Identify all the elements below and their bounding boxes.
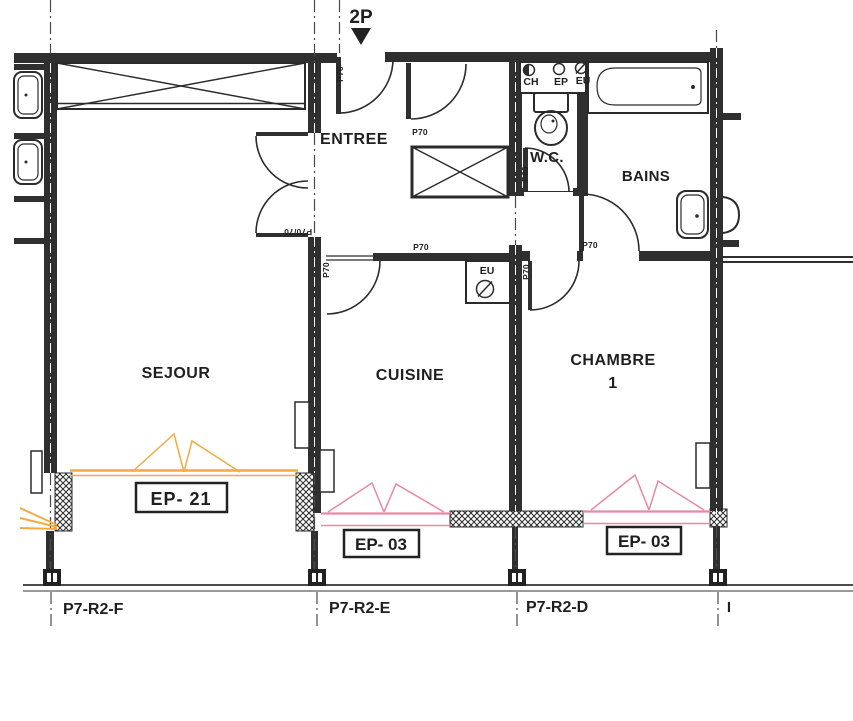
window-chambre: [583, 475, 710, 524]
toilet-dot: [552, 120, 555, 123]
neighbor-fixture-2-inner: [18, 144, 38, 180]
window-tag-chambre: EP- 03: [607, 527, 681, 554]
casement-triangle: [591, 475, 649, 510]
room-label-bains: BAINS: [622, 168, 670, 185]
wall-bains-south: [639, 251, 723, 261]
grid-label-e: P7-R2-E: [329, 600, 391, 617]
column-marker: [43, 569, 61, 586]
wall-cuisine-top: [373, 253, 512, 261]
column-slot: [47, 573, 51, 582]
casement-triangle: [184, 441, 240, 472]
closet-x: [57, 63, 305, 109]
column-square: [508, 569, 526, 586]
window-tag-cuisine: EP- 03: [344, 530, 419, 557]
pilaster-neighbor: [31, 451, 42, 493]
neighbor-basin: [723, 197, 739, 233]
entrance-door-arc: [339, 59, 393, 113]
window-tag-sejour: EP- 21: [136, 483, 227, 512]
neighbor-wall-stub-right: [723, 240, 739, 247]
washbasin-inner: [681, 195, 704, 234]
column-slot: [518, 573, 522, 582]
casement-triangle: [132, 434, 184, 472]
spandrel-center: [450, 511, 583, 527]
grid-tick-right: I: [727, 599, 731, 616]
column-marker: [709, 569, 727, 586]
door-tag-cuisine: P70: [321, 262, 331, 278]
eu-duct-label: EU: [576, 75, 591, 87]
closet-corridor: [412, 147, 508, 197]
cuisine-door-arc: [327, 261, 380, 314]
closet-sejour: [57, 63, 305, 109]
door-tag-corridor: P70: [413, 242, 429, 252]
closet-x: [412, 147, 508, 197]
toilet-bowl-inner: [541, 115, 557, 133]
neighbor-wall-stub: [14, 238, 44, 244]
room-label-sejour: SEJOUR: [142, 365, 211, 382]
room-label-wc: W.C.: [530, 149, 564, 166]
column-marker: [308, 569, 326, 586]
column-slot: [713, 573, 717, 582]
neighbor-window-corner: [20, 508, 57, 529]
double-door-arc-bottom: [256, 181, 308, 233]
cuisine-door-threshold: [326, 256, 374, 260]
window-cuisine: [321, 483, 450, 526]
neighbor-fixture-1-dot: [25, 94, 28, 97]
column-slot: [312, 573, 316, 582]
room-label-chambre-number: 1: [608, 375, 617, 392]
room-label-chambre: CHAMBRE: [570, 352, 655, 369]
ep-duct-label: EP: [554, 76, 568, 88]
entrance-arrow-icon: [351, 28, 371, 45]
room-label-cuisine: CUISINE: [376, 367, 444, 384]
neighbor-wall-stub: [14, 196, 44, 202]
facade-baseline: P7-R2-F P7-R2-E P7-R2-D I: [23, 569, 853, 618]
pier-sejour-left: [55, 473, 72, 531]
neighbor-wall-right-extension: [723, 257, 853, 262]
bathtub-inner: [597, 68, 701, 105]
neighbor-fixture-1-inner: [18, 76, 38, 114]
washbasin-drain-dot: [695, 214, 699, 218]
entrance-door-leaf: [336, 57, 341, 114]
door-tag-bains: P70: [582, 240, 598, 250]
window-tag-label: EP- 03: [618, 532, 670, 551]
double-door-leaf-top: [256, 132, 308, 136]
window-tag-label: EP- 21: [150, 489, 211, 509]
casement-triangle: [328, 483, 384, 512]
door-tag-entrance: P70: [335, 66, 345, 82]
duct-box-cuisine: EU: [466, 261, 510, 303]
pier-sejour-right: [296, 473, 314, 531]
grid-label-f: P7-R2-F: [63, 601, 124, 618]
pilaster-cuisine: [320, 450, 334, 492]
corridor-door-arc: [411, 64, 466, 119]
wall-top-left: [14, 53, 337, 63]
column-square: [43, 569, 61, 586]
neighbor-wall-stub: [14, 64, 44, 70]
pilaster-chambre: [696, 443, 710, 488]
neighbor-fixture-2-dot: [25, 161, 28, 164]
wall-corridor-jamb-left: [522, 251, 530, 261]
door-tag-chambre: P70: [521, 264, 531, 280]
ch-duct-label: CH: [523, 76, 538, 88]
wall-top-right: [385, 52, 723, 62]
door-tag-closet: P70: [412, 127, 428, 137]
neighbor-wall-stub: [14, 133, 44, 139]
neighbor-wall-stub-right: [723, 113, 741, 120]
door-tag-wc: P60: [520, 166, 530, 182]
wall-wc-jamb-left: [509, 188, 524, 196]
room-labels: SEJOUR ENTREE W.C. BAINS CUISINE CHAMBRE…: [142, 131, 670, 392]
door-size-tags: P70 P70 P70 P70 P70 P70 P70/70 P60: [284, 66, 598, 280]
chambre-door-arc: [530, 261, 579, 310]
wall-corridor-jamb-mid: [577, 251, 583, 261]
eu-duct-label: EU: [480, 265, 495, 277]
column-marker: [508, 569, 526, 586]
door-tag-sejour-double: P70/70: [284, 227, 312, 237]
room-label-entree: ENTREE: [320, 131, 388, 148]
unit-type-label: 2P: [349, 7, 373, 28]
column-slot: [318, 573, 322, 582]
column-slot: [53, 573, 57, 582]
column-slot: [719, 573, 723, 582]
column-square: [308, 569, 326, 586]
toilet-tank: [534, 93, 568, 112]
fixtures: [14, 62, 739, 493]
column-square: [709, 569, 727, 586]
floorplan-2p: CH EP EU EU EP- 21 EP- 03 EP- 0: [0, 0, 853, 721]
column-slot: [512, 573, 516, 582]
pier-chambre-right: [710, 509, 727, 527]
casement-triangle: [384, 484, 444, 512]
duct-box-wc: CH EP EU: [520, 62, 590, 93]
pilaster-sejour: [295, 402, 309, 448]
toilet-bowl: [535, 111, 567, 145]
double-door-arc-top: [256, 136, 308, 188]
grid-label-d: P7-R2-D: [526, 599, 588, 616]
corridor-door-leaf: [406, 63, 411, 119]
bathtub-drain-dot: [691, 85, 695, 89]
entrance-marker: 2P: [349, 7, 373, 45]
window-tag-label: EP- 03: [355, 535, 407, 554]
